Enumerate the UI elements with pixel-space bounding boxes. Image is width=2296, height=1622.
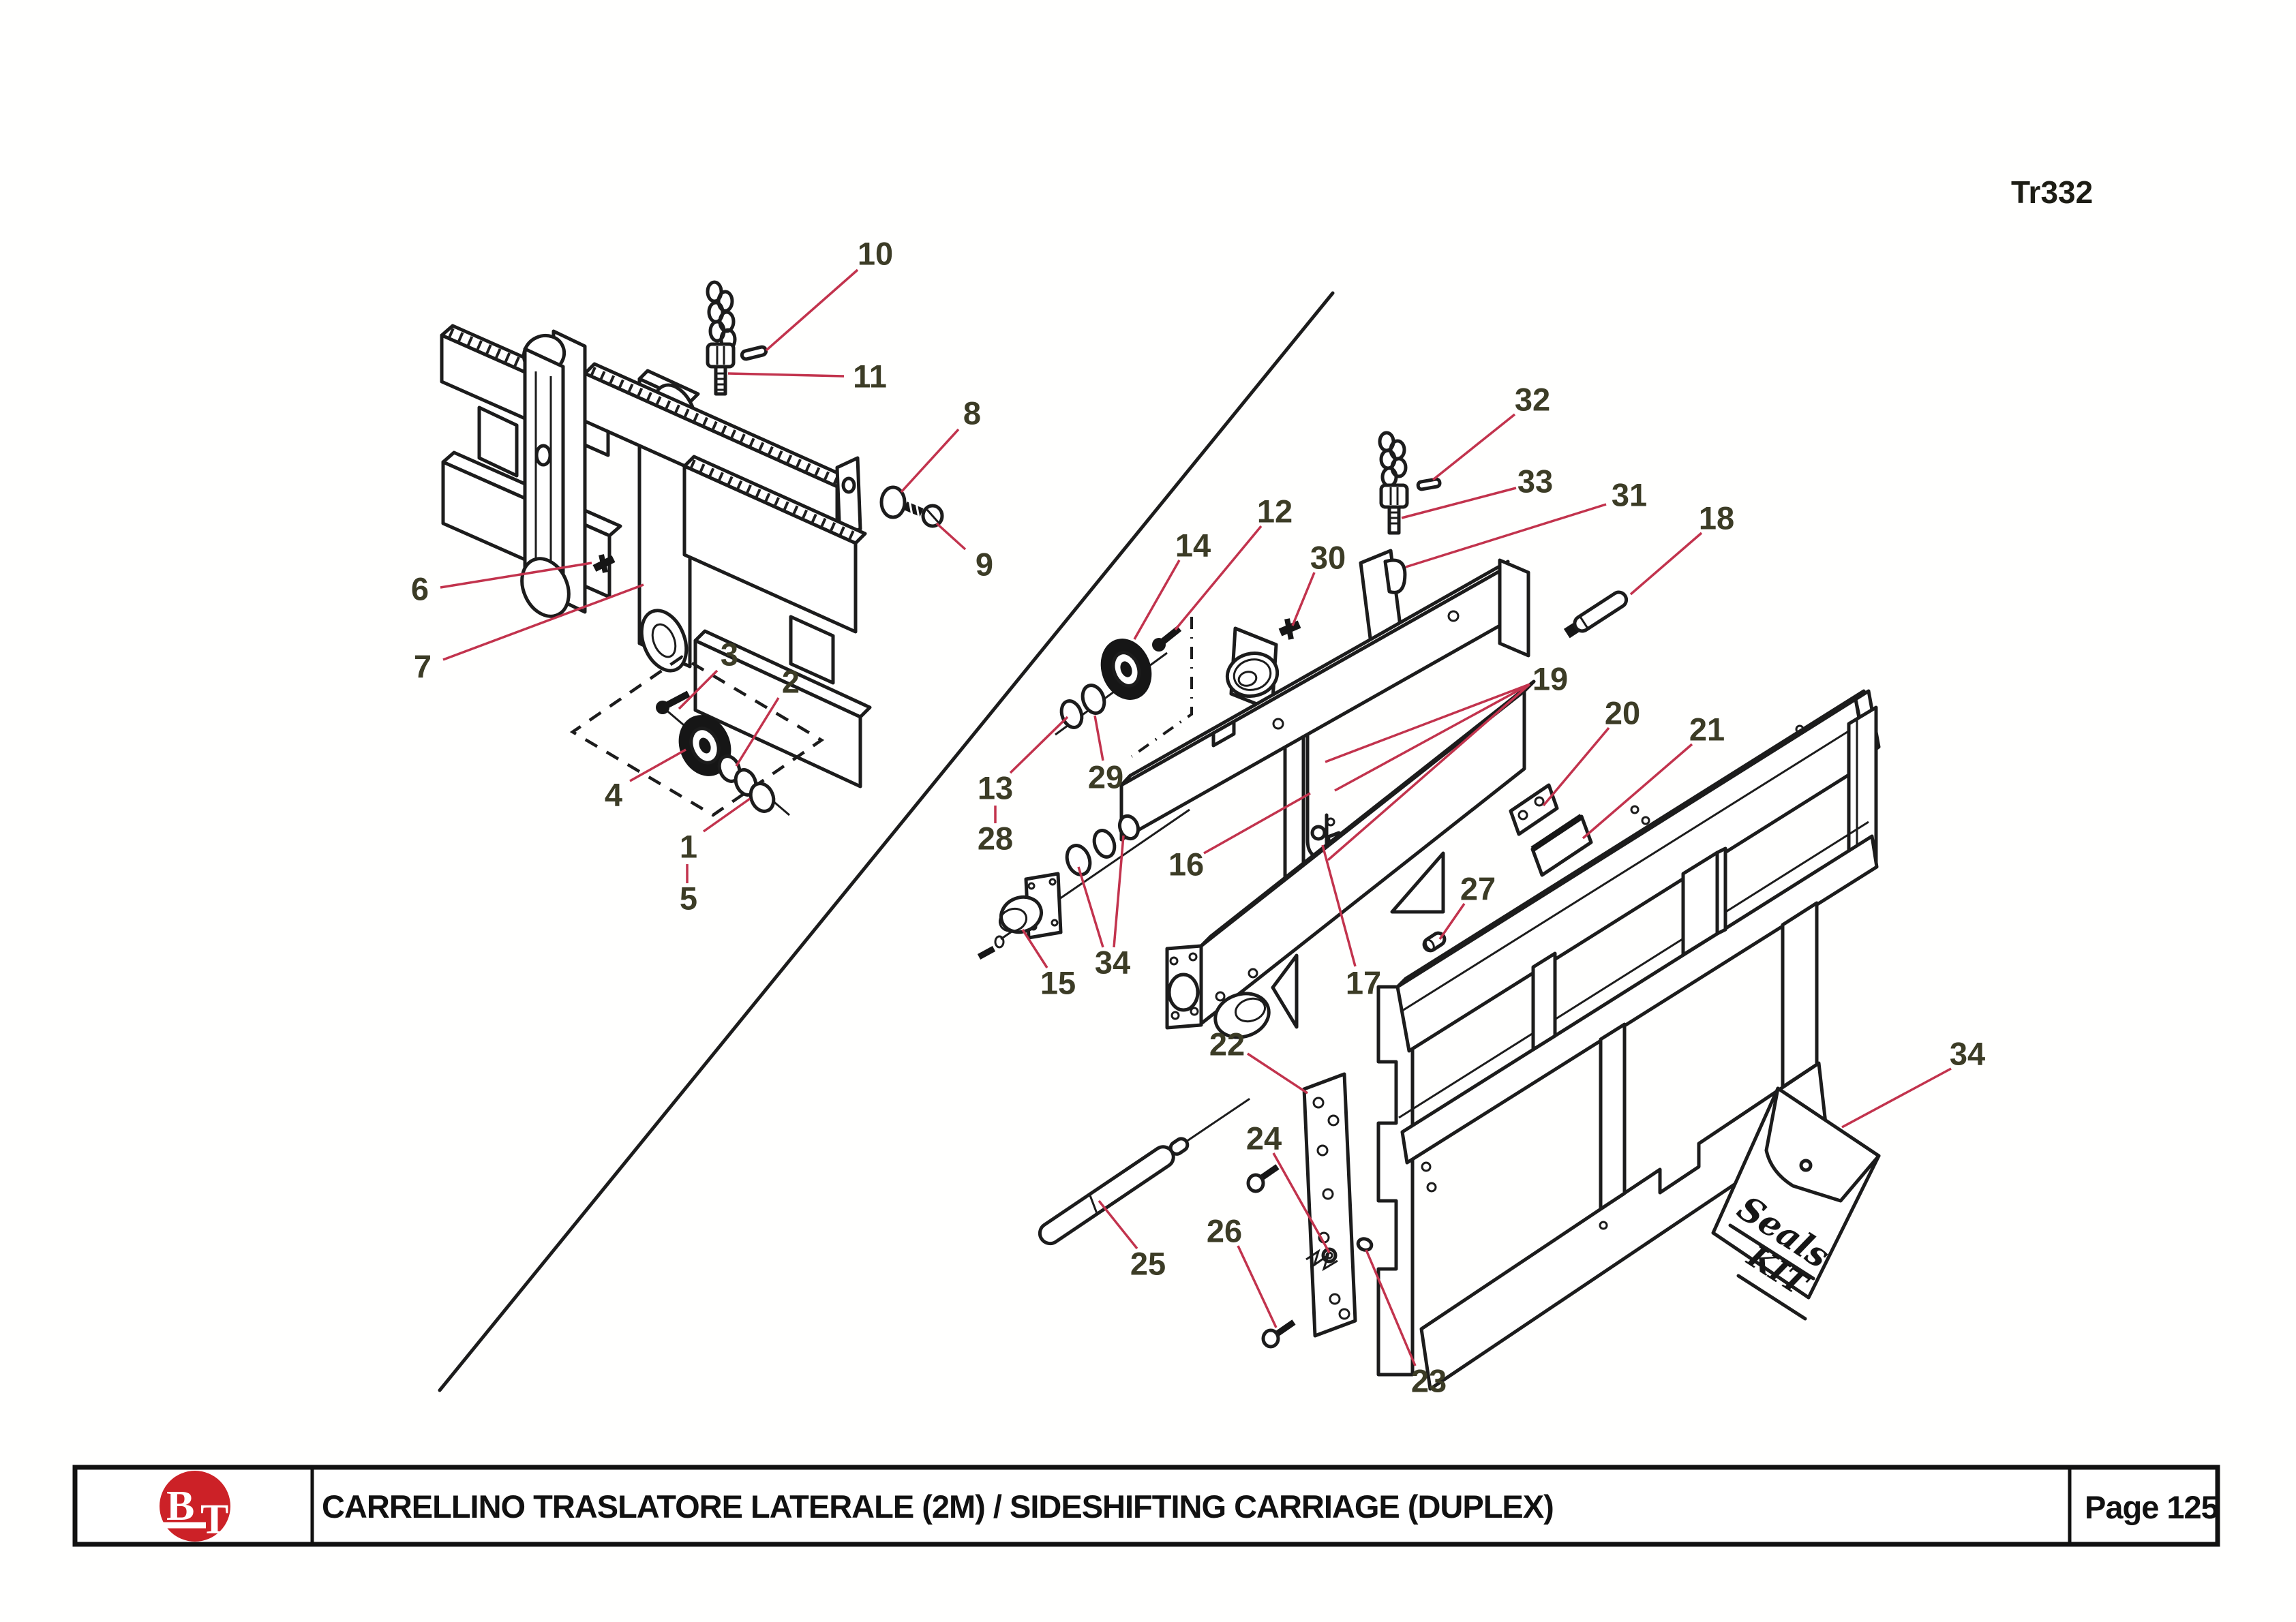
- doc-code: Tr332: [2011, 174, 2093, 210]
- part-callout-33: 33: [1517, 463, 1553, 500]
- bt-logo-letter-t: T: [200, 1497, 228, 1543]
- leader-line: [1543, 728, 1609, 806]
- leader-line: [1095, 716, 1103, 761]
- part-callout-31: 31: [1612, 477, 1647, 513]
- part-callout-28: 28: [978, 821, 1013, 857]
- wear-plate-22: [1304, 1074, 1355, 1336]
- part-callout-3: 3: [721, 637, 738, 673]
- leader-line: [1842, 1069, 1951, 1127]
- part-callout-32: 32: [1515, 382, 1550, 418]
- leader-line: [1248, 1054, 1308, 1093]
- screw-9: [905, 500, 942, 526]
- leader-line: [1631, 533, 1702, 594]
- leader-line: [901, 429, 958, 492]
- part-callout-7: 7: [414, 649, 432, 685]
- leader-line: [1134, 560, 1179, 639]
- part-callout-11: 11: [853, 358, 887, 395]
- part-callout-22: 22: [1209, 1026, 1245, 1062]
- chain-10-11: [708, 282, 767, 394]
- part-callout-12: 12: [1257, 493, 1293, 530]
- part-callout-17: 17: [1346, 965, 1381, 1001]
- leader-line: [1293, 572, 1314, 626]
- part-callout-15: 15: [1040, 965, 1076, 1001]
- part-callout-6: 6: [411, 571, 429, 607]
- leader-line: [1099, 1201, 1137, 1249]
- leader-line: [1010, 717, 1068, 773]
- page-title: CARRELLINO TRASLATORE LATERALE (2M) / SI…: [322, 1488, 1554, 1525]
- part-callout-20: 20: [1605, 695, 1640, 731]
- part-callout-25: 25: [1130, 1246, 1166, 1282]
- chain-32-33: [1380, 433, 1440, 533]
- leader-line: [766, 270, 858, 350]
- screw-30: [1280, 619, 1299, 639]
- part-callout-1: 1: [680, 829, 697, 865]
- part-callout-34: 34: [1950, 1036, 1985, 1072]
- leader-line: [1078, 867, 1103, 947]
- part-callout-2: 2: [782, 664, 800, 700]
- part-callout-26: 26: [1207, 1213, 1242, 1249]
- part-callout-8: 8: [963, 395, 981, 431]
- part-callout-13: 13: [978, 770, 1013, 806]
- leader-line: [1402, 488, 1516, 518]
- page-number: Page 125: [2085, 1489, 2218, 1525]
- chain-hook-31: [1385, 560, 1405, 592]
- part-callout-21: 21: [1689, 711, 1725, 748]
- pin-32: [1417, 478, 1440, 489]
- exploded-diagram-svg: Tr332: [0, 0, 2296, 1622]
- part-callout-29: 29: [1088, 759, 1123, 795]
- roller-kit-right: [1055, 617, 1192, 756]
- part-callout-16: 16: [1168, 846, 1204, 883]
- part-callout-18: 18: [1699, 500, 1734, 536]
- sideshift-frame-assembly: Seals KIT: [979, 433, 1879, 1389]
- leader-line: [1114, 836, 1123, 947]
- part-callout-30: 30: [1310, 540, 1346, 576]
- leader-line: [728, 373, 844, 376]
- plate-20: [1511, 785, 1557, 834]
- part-callout-27: 27: [1460, 871, 1496, 907]
- part-callout-14: 14: [1175, 527, 1211, 564]
- part-callout-10: 10: [858, 236, 893, 272]
- leader-line: [630, 750, 686, 781]
- leader-line: [1238, 1246, 1276, 1328]
- part-callout-24: 24: [1246, 1120, 1282, 1157]
- part-callout-4: 4: [605, 777, 622, 813]
- footer-bar: B T CARRELLINO TRASLATORE LATERALE (2M) …: [75, 1467, 2218, 1544]
- part-callout-9: 9: [976, 547, 993, 583]
- leader-line: [1433, 414, 1515, 480]
- part-callout-5: 5: [680, 881, 697, 917]
- leader-line: [704, 799, 750, 831]
- bolt-17: [1312, 827, 1325, 839]
- part-callout-34: 34: [1095, 945, 1130, 981]
- parts-catalog-page: Tr332: [0, 0, 2296, 1622]
- pin-10: [741, 346, 767, 360]
- leader-line: [1406, 504, 1606, 567]
- pin-18: [1562, 590, 1629, 640]
- leader-line: [937, 523, 965, 549]
- part-callout-19: 19: [1532, 661, 1568, 697]
- part-callout-23: 23: [1411, 1363, 1447, 1399]
